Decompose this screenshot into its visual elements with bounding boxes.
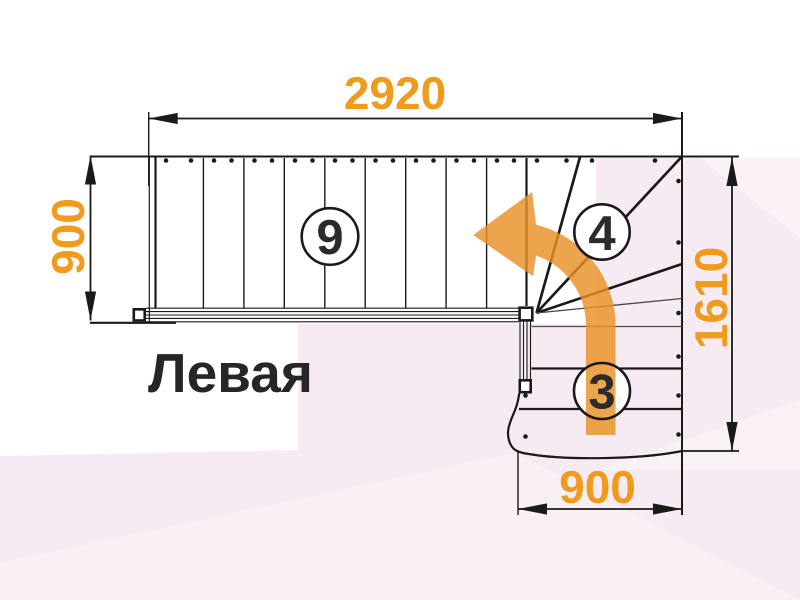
svg-text:Левая: Левая	[148, 342, 313, 404]
svg-text:900: 900	[42, 198, 94, 275]
svg-text:2920: 2920	[344, 67, 446, 119]
svg-text:4: 4	[588, 207, 615, 261]
svg-text:3: 3	[588, 366, 615, 420]
svg-text:9: 9	[316, 211, 343, 265]
svg-text:1610: 1610	[685, 247, 737, 349]
svg-text:900: 900	[559, 461, 636, 513]
